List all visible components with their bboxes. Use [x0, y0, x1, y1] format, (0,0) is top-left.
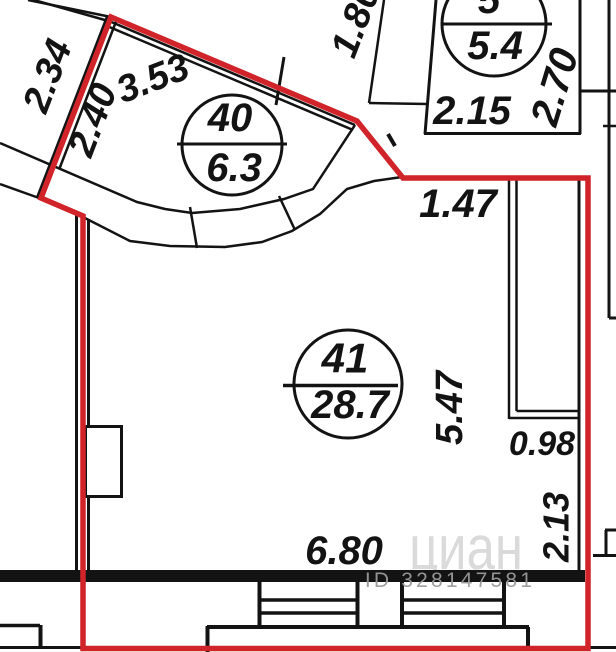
svg-text:41: 41 [321, 335, 369, 382]
svg-text:6.80: 6.80 [305, 529, 383, 573]
svg-text:2.15: 2.15 [432, 89, 512, 133]
svg-text:28.7: 28.7 [310, 383, 391, 427]
svg-text:0.98: 0.98 [509, 425, 575, 463]
svg-text:5.4: 5.4 [467, 24, 523, 68]
svg-text:ID 328147581: ID 328147581 [365, 569, 535, 592]
svg-text:5.47: 5.47 [429, 369, 471, 445]
svg-text:6.3: 6.3 [206, 146, 262, 190]
svg-text:40: 40 [207, 96, 253, 140]
svg-text:1.47: 1.47 [419, 182, 499, 226]
svg-text:5: 5 [478, 0, 501, 22]
svg-text:2.13: 2.13 [536, 492, 577, 563]
